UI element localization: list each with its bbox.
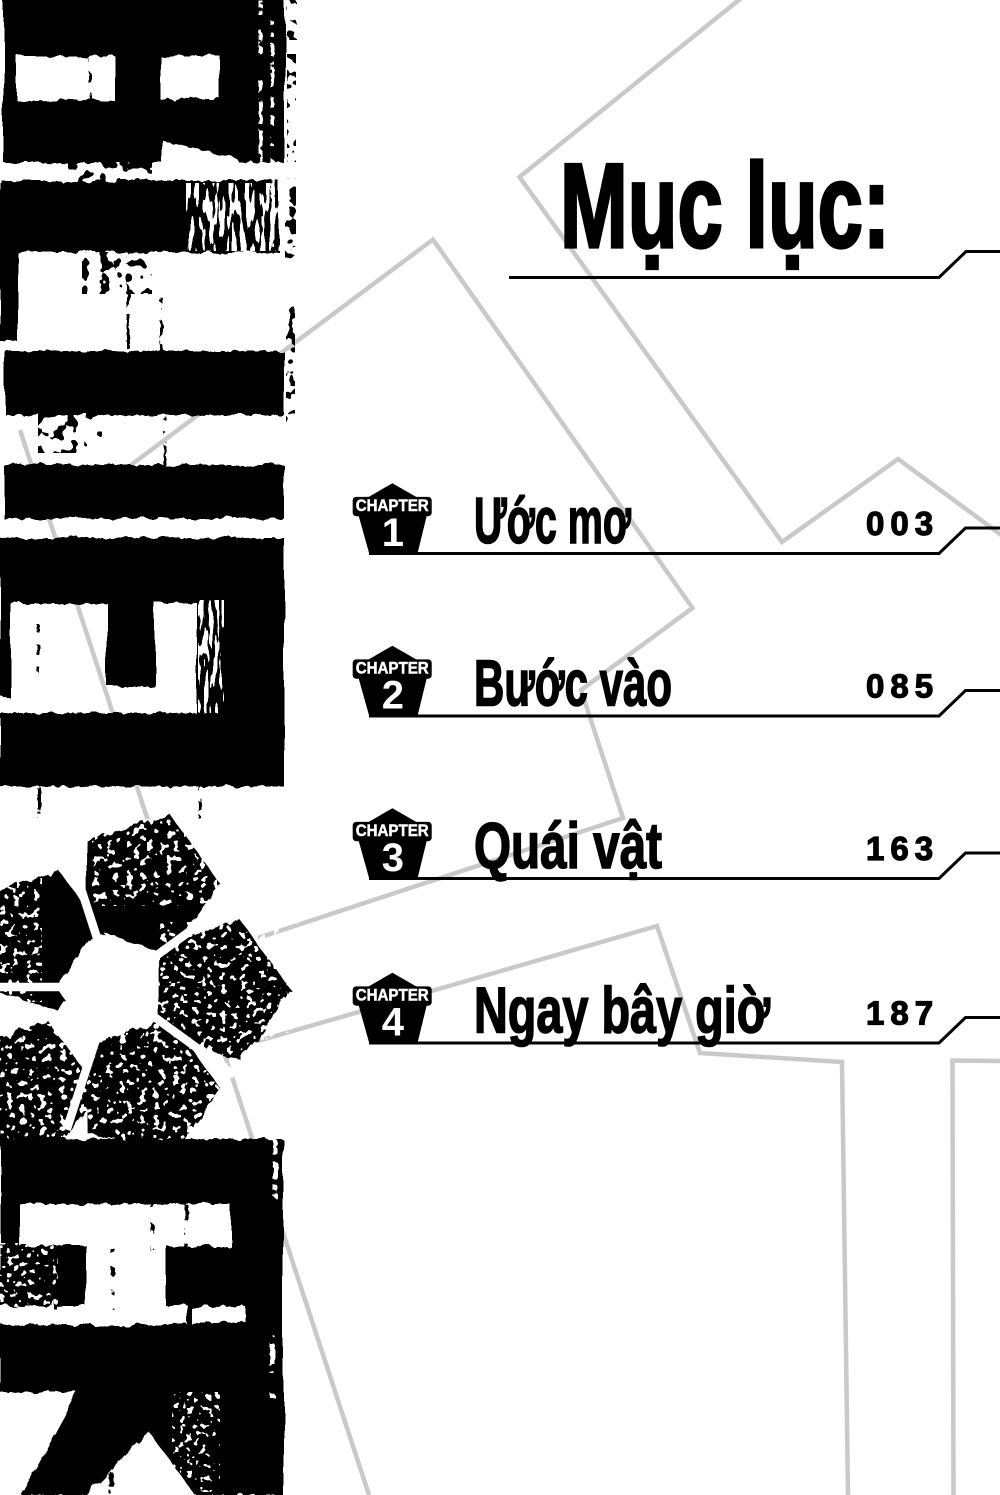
svg-text:003: 003 xyxy=(866,505,939,542)
svg-text:163: 163 xyxy=(866,830,939,867)
svg-text:Mục lục:: Mục lục: xyxy=(560,139,890,273)
svg-text:Ước mơ: Ước mơ xyxy=(474,485,631,557)
svg-text:2: 2 xyxy=(382,674,404,718)
svg-text:Bước vào: Bước vào xyxy=(474,648,672,720)
svg-text:085: 085 xyxy=(866,668,939,705)
svg-text:Ngay bây giờ: Ngay bây giờ xyxy=(474,975,770,1047)
svg-text:1: 1 xyxy=(382,511,404,555)
svg-text:187: 187 xyxy=(866,995,939,1032)
svg-text:4: 4 xyxy=(382,1001,405,1045)
svg-text:3: 3 xyxy=(382,836,404,880)
svg-text:Quái vật: Quái vật xyxy=(474,810,662,882)
